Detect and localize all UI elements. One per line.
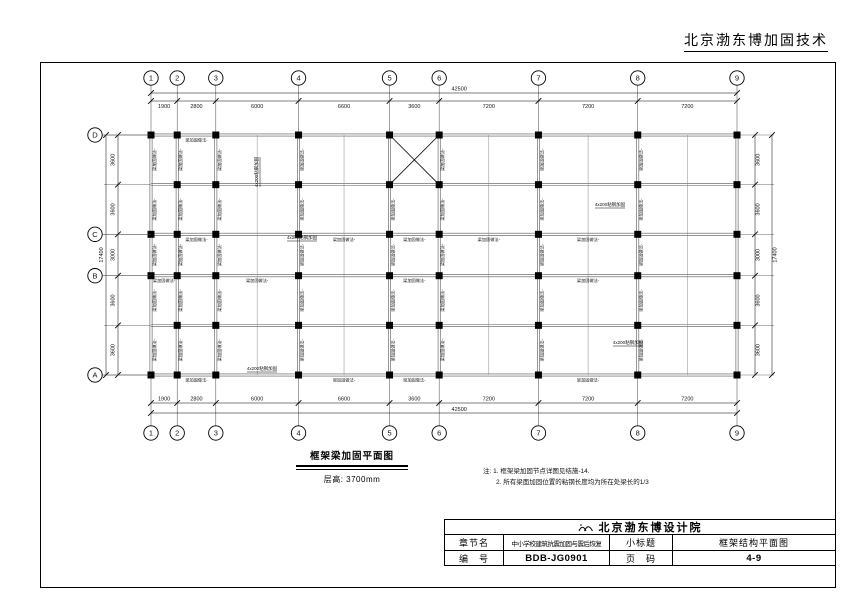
column (295, 372, 302, 379)
dim-label-bottom: 7200 (483, 397, 495, 403)
column (212, 181, 219, 188)
dim-label-right: 3600 (756, 154, 762, 166)
dim-label-top: 1900 (158, 104, 170, 110)
column (734, 231, 741, 238)
beam-annotation: 梁加固做法- (638, 198, 645, 221)
column (212, 372, 219, 379)
beam-annotation: 梁加固做法- (390, 338, 397, 361)
grid-bubble-label: 5 (387, 74, 391, 83)
dim-label-top: 2800 (190, 104, 202, 110)
steel-annotation: 4x200粘钢加固 (253, 156, 260, 187)
column (734, 272, 741, 279)
column (436, 231, 443, 238)
beam-annotation: 梁加固做法- (478, 236, 501, 243)
grid-bubble-label: C (92, 230, 98, 239)
beam-annotation: 梁加固做法- (390, 289, 397, 312)
column (386, 132, 393, 139)
beam-annotation: 梁加固做法- (538, 148, 545, 171)
beam-annotation: 梁加固做法- (538, 243, 545, 266)
column (634, 231, 641, 238)
dim-label-right: 3600 (756, 344, 762, 356)
beam-annotation: 梁加固做法- (390, 243, 397, 266)
grid-bubble-label: 2 (175, 74, 179, 83)
column (734, 132, 741, 139)
column (212, 322, 219, 329)
column (386, 372, 393, 379)
dim-label-left: 3600 (111, 154, 117, 166)
steel-annotation: 4x200粘钢加固 (287, 234, 318, 241)
beam-annotation: 梁加固做法- (246, 277, 269, 284)
beam-annotation: 梁加固做法- (403, 377, 426, 384)
column (386, 231, 393, 238)
dim-label-top: 7200 (582, 104, 594, 110)
column (436, 132, 443, 139)
column (734, 181, 741, 188)
beam-annotation: 梁加固做法- (151, 198, 158, 221)
dim-label-left: 3600 (111, 344, 117, 356)
dim-label-bottom: 6000 (251, 397, 263, 403)
grid-bubble-label: A (92, 371, 97, 380)
beam-annotation: 梁加固做法- (333, 236, 356, 243)
beam-annotation: 梁加固做法- (299, 338, 306, 361)
beam-annotation: 梁加固做法- (299, 243, 306, 266)
beam-annotation: 梁加固做法- (439, 198, 446, 221)
dim-label-top: 6600 (338, 104, 350, 110)
caption-title: 框架梁加固平面图 (294, 448, 410, 465)
beam-annotation: 梁加固做法- (538, 338, 545, 361)
beam-annotation: 梁加固做法- (177, 148, 184, 171)
grid-bubble-label: 8 (636, 74, 640, 83)
column (535, 272, 542, 279)
drawing-sheet: 北京渤东博加固技术 425001900280060006600360072007… (0, 0, 863, 609)
column (212, 231, 219, 238)
beam-annotation: 梁加固做法- (439, 289, 446, 312)
beam-annotation: 梁加固做法- (151, 289, 158, 312)
column (174, 322, 181, 329)
subtitle-value: 框架结构平面图 (673, 535, 835, 550)
grid-bubble-label: 5 (387, 429, 391, 438)
grid-bubble-label: 6 (437, 74, 441, 83)
column (734, 372, 741, 379)
beam-annotation: 梁加固做法- (151, 148, 158, 171)
grid-bubble-label: 1 (149, 74, 153, 83)
column (174, 181, 181, 188)
beam-annotation: 梁加固做法- (403, 277, 426, 284)
beam-annotation: 梁加固做法- (151, 338, 158, 361)
grid-bubble-label: 8 (636, 429, 640, 438)
page-label: 页 码 (610, 550, 673, 565)
beam-annotation: 梁加固做法- (538, 198, 545, 221)
drawing-notes: 注: 1. 框架梁加固节点详图见结施-14. 2. 所有梁面加固位置的粘钢长度均… (483, 466, 649, 488)
beam-annotation: 梁加固做法- (439, 243, 446, 266)
dim-label-bottom: 1900 (158, 397, 170, 403)
steel-annotation: 4x200粘钢加固 (613, 339, 644, 346)
beam-annotation: 梁加固做法- (638, 289, 645, 312)
column (734, 322, 741, 329)
overall-dim-bottom: 42500 (452, 407, 467, 413)
grid-bubble-label: 3 (214, 74, 218, 83)
column (386, 272, 393, 279)
beam-annotation: 梁加固做法- (577, 236, 600, 243)
grid-bubble-label: B (92, 271, 97, 280)
column (386, 181, 393, 188)
column (436, 272, 443, 279)
beam-annotation: 梁加固做法- (153, 277, 176, 284)
beam-annotation: 梁加固做法- (403, 236, 426, 243)
title-block-header: 北京渤东博设计院 (445, 520, 835, 535)
beam-annotation: 梁加固做法- (390, 198, 397, 221)
grid-bubble-label: 7 (536, 74, 540, 83)
beam-annotation: 梁加固做法- (216, 289, 223, 312)
beam-annotation: 梁加固做法- (185, 137, 208, 144)
note-line-1: 注: 1. 框架梁加固节点详图见结施-14. (483, 466, 649, 477)
steel-annotation: 4x200粘钢加固 (595, 201, 626, 208)
beam-annotation: 梁加固做法- (151, 243, 158, 266)
institute-name: 北京渤东博设计院 (599, 519, 703, 535)
grid-bubble-label: D (92, 131, 98, 140)
column (386, 322, 393, 329)
column (634, 372, 641, 379)
column (634, 272, 641, 279)
note-line-2: 2. 所有梁面加固位置的粘钢长度均为所在处梁长的1/3 (483, 477, 649, 488)
dim-label-bottom: 7200 (681, 397, 693, 403)
beam-annotation: 梁加固做法- (177, 198, 184, 221)
overall-dim-right: 17400 (773, 247, 779, 262)
caption-subtitle: 层高: 3700mm (294, 474, 410, 485)
grid-bubble-label: 9 (735, 429, 739, 438)
column (535, 181, 542, 188)
column (634, 181, 641, 188)
dim-label-right: 3600 (756, 294, 762, 306)
subtitle-label: 小标题 (610, 535, 673, 550)
beam-annotation: 梁加固做法- (177, 243, 184, 266)
overall-dim-top: 42500 (452, 87, 467, 93)
beam-annotation: 梁加固做法- (299, 289, 306, 312)
grid-bubble-label: 6 (437, 429, 441, 438)
column (535, 231, 542, 238)
beam-annotation: 梁加固做法- (185, 377, 208, 384)
grid-bubble-label: 2 (175, 429, 179, 438)
dim-label-bottom: 7200 (582, 397, 594, 403)
institute-logo-icon (578, 522, 594, 533)
column (436, 372, 443, 379)
beam-annotation: 梁加固做法- (638, 148, 645, 171)
column (295, 181, 302, 188)
column (295, 272, 302, 279)
column (535, 322, 542, 329)
grid-bubble-label: 9 (735, 74, 739, 83)
grid-bubble-label: 1 (149, 429, 153, 438)
column (174, 372, 181, 379)
beam-annotation: 梁加固做法- (439, 148, 446, 171)
steel-annotation: 4x200粘钢加固 (247, 365, 278, 372)
dim-label-top: 7200 (483, 104, 495, 110)
dim-label-bottom: 3600 (408, 397, 420, 403)
column (436, 322, 443, 329)
column (634, 132, 641, 139)
beam-annotation: 梁加固做法- (577, 277, 600, 284)
column (295, 322, 302, 329)
chapter-value: 中小学校建筑抗震加固与震后恢复 (504, 535, 610, 550)
dim-label-left: 3600 (111, 203, 117, 215)
number-value: BDB-JG0901 (504, 550, 610, 565)
beam-annotation: 梁加固做法- (439, 338, 446, 361)
beam-annotation: 梁加固做法- (216, 338, 223, 361)
plan-caption: 框架梁加固平面图 层高: 3700mm (294, 448, 410, 485)
beam-annotation: 梁加固做法- (333, 377, 356, 384)
page-value: 4-9 (673, 550, 835, 565)
column (212, 132, 219, 139)
dim-label-top: 3600 (408, 104, 420, 110)
grid-bubble-label: 4 (296, 74, 300, 83)
column (634, 322, 641, 329)
dim-label-left: 3600 (111, 294, 117, 306)
caption-underline (296, 465, 408, 470)
dim-label-right: 3000 (756, 249, 762, 261)
dim-label-top: 6000 (251, 104, 263, 110)
column (295, 132, 302, 139)
grid-bubble-label: 3 (214, 429, 218, 438)
dim-label-right: 3600 (756, 203, 762, 215)
beam-annotation: 梁加固做法- (177, 289, 184, 312)
number-label: 编 号 (445, 550, 504, 565)
beam-annotation: 梁加固做法- (538, 289, 545, 312)
column (535, 372, 542, 379)
dim-label-left: 3000 (111, 249, 117, 261)
beam-annotation: 梁加固做法- (216, 243, 223, 266)
column (436, 181, 443, 188)
dim-label-bottom: 2800 (190, 397, 202, 403)
beam-annotation: 梁加固做法- (216, 148, 223, 171)
beam-annotation: 梁加固做法- (299, 148, 306, 171)
overall-dim-left: 17400 (99, 247, 105, 262)
beam-annotation: 梁加固做法- (185, 236, 208, 243)
grid-bubble-label: 4 (296, 429, 300, 438)
column (212, 272, 219, 279)
beam-annotation: 梁加固做法- (177, 338, 184, 361)
dim-label-bottom: 6600 (338, 397, 350, 403)
column (174, 231, 181, 238)
structural-plan-drawing: 4250019002800600066003600720072007200190… (0, 0, 863, 609)
beam-annotation: 梁加固做法- (216, 198, 223, 221)
beam-annotation: 梁加固做法- (638, 243, 645, 266)
beam-annotation: 梁加固做法- (299, 198, 306, 221)
chapter-label: 章节名 (445, 535, 504, 550)
column (174, 132, 181, 139)
beam-annotation: 梁加固做法- (577, 377, 600, 384)
column (535, 132, 542, 139)
dim-label-top: 7200 (681, 104, 693, 110)
grid-bubble-label: 7 (536, 429, 540, 438)
title-block: 北京渤东博设计院 章节名 中小学校建筑抗震加固与震后恢复 小标题 框架结构平面图… (444, 519, 836, 566)
